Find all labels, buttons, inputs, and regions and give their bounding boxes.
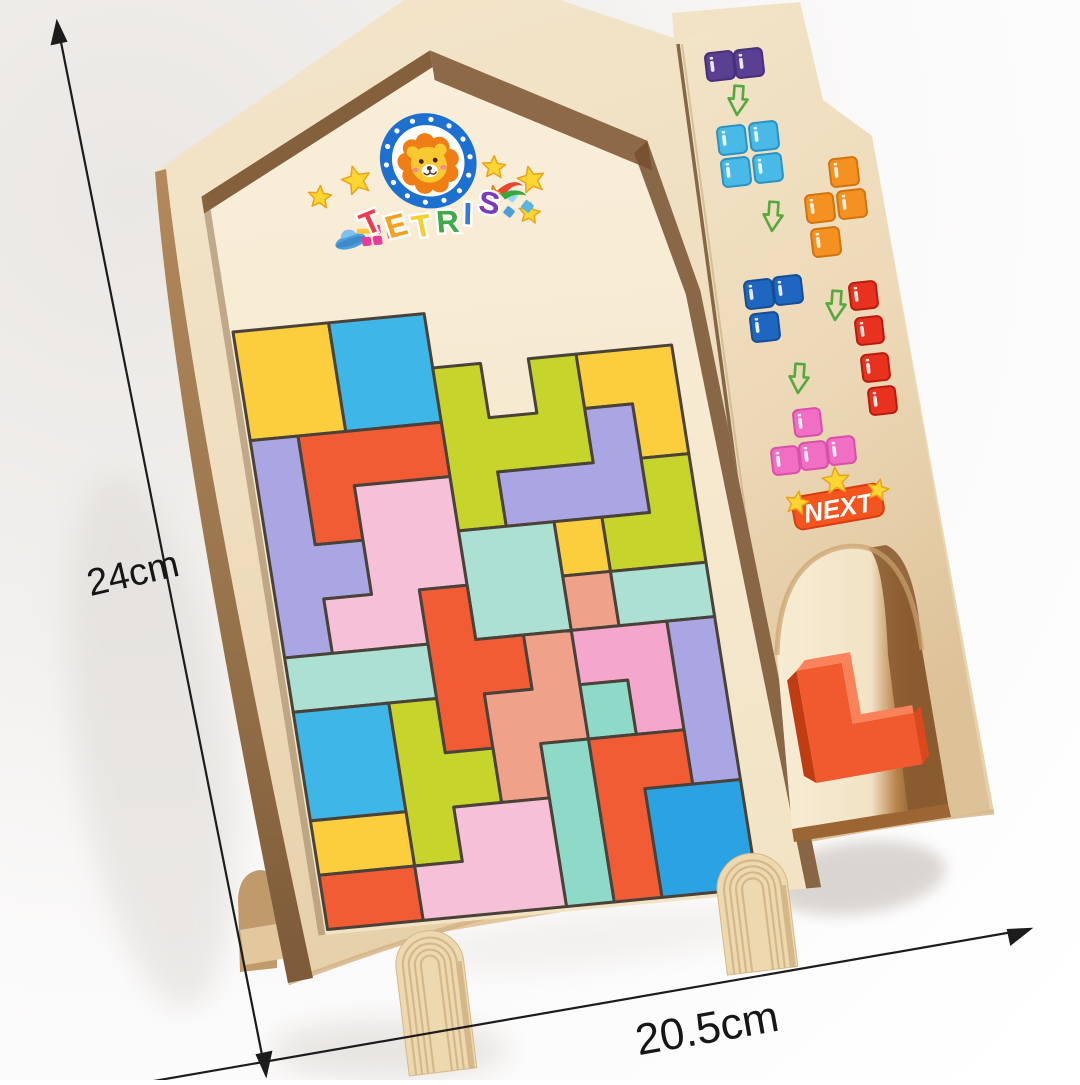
svg-text:I: I: [463, 196, 472, 231]
svg-text:S: S: [477, 184, 502, 222]
svg-text:R: R: [435, 204, 461, 239]
